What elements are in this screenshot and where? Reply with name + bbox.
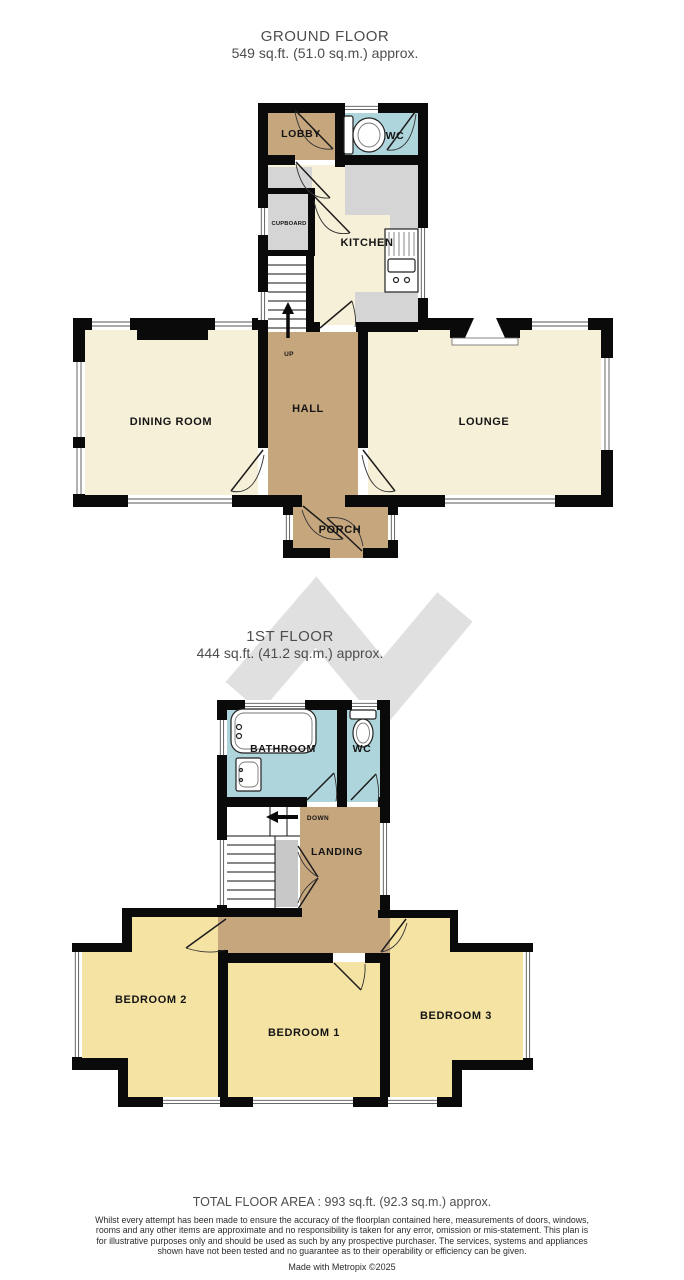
room-label-bathroom: BATHROOM <box>250 743 316 755</box>
room-label-lobby: LOBBY <box>281 128 321 140</box>
wall <box>308 188 315 256</box>
room-label-landing: LANDING <box>311 846 363 858</box>
window <box>258 208 268 235</box>
window <box>92 318 130 330</box>
first-floor-name: 1ST FLOOR <box>0 628 580 645</box>
room-label-wc-ground: WC <box>386 130 405 142</box>
porch-door-opening <box>330 548 363 558</box>
window <box>163 1097 220 1107</box>
room-label-dining: DINING ROOM <box>130 416 212 428</box>
toilet-icon <box>344 116 385 154</box>
room-label-bedroom3: BEDROOM 3 <box>420 1010 492 1022</box>
room-label-wc-first: WC <box>353 743 372 755</box>
total-floor-area: TOTAL FLOOR AREA : 993 sq.ft. (92.3 sq.m… <box>0 1195 684 1209</box>
ground-floor-plan: LOBBY WC CUPBOARD KITCHEN DINING ROOM HA… <box>73 103 613 558</box>
window <box>388 1097 437 1107</box>
window <box>445 495 555 507</box>
stairs-down-label: DOWN <box>307 815 329 822</box>
wall <box>264 188 315 194</box>
basin-icon <box>236 758 261 791</box>
kitchen-counter <box>268 167 312 190</box>
window <box>215 318 252 330</box>
window <box>345 103 378 113</box>
room-label-hall: HALL <box>292 403 324 415</box>
kitchen-counter <box>355 292 418 322</box>
window <box>418 228 428 298</box>
hall-porch-opening <box>302 495 345 507</box>
chimney-breast <box>137 318 208 340</box>
room-landing-lower <box>218 917 390 953</box>
window <box>388 515 398 540</box>
window <box>217 720 227 755</box>
window <box>283 515 293 540</box>
room-lounge <box>368 330 601 497</box>
window <box>73 448 85 494</box>
room-label-cupboard: CUPBOARD <box>271 221 306 227</box>
disclaimer-text: Whilst every attempt has been made to en… <box>92 1215 592 1257</box>
fireplace <box>450 318 520 345</box>
room-label-kitchen: KITCHEN <box>340 237 393 249</box>
window <box>258 292 268 320</box>
room-dining <box>85 330 258 497</box>
kitchen-counter <box>345 165 418 215</box>
floorplan-page: GROUND FLOOR 549 sq.ft. (51.0 sq.m.) app… <box>0 0 684 1280</box>
first-floor-area: 444 sq.ft. (41.2 sq.m.) approx. <box>0 645 580 662</box>
room-label-bedroom1: BEDROOM 1 <box>268 1027 340 1039</box>
room-label-porch: PORCH <box>319 524 362 536</box>
window <box>380 823 390 895</box>
room-label-bedroom2: BEDROOM 2 <box>115 994 187 1006</box>
room-landing <box>300 807 380 917</box>
room-label-lounge: LOUNGE <box>459 416 510 428</box>
window <box>128 495 232 507</box>
credit-text: Made with Metropix ©2025 <box>0 1262 684 1272</box>
first-floor-title: 1ST FLOOR 444 sq.ft. (41.2 sq.m.) approx… <box>0 628 580 662</box>
window <box>253 1097 353 1107</box>
window <box>532 318 588 330</box>
window <box>352 700 377 710</box>
window <box>217 840 227 905</box>
stairs-up-label: UP <box>284 351 294 358</box>
window <box>72 952 82 1057</box>
staircase-first <box>227 807 300 908</box>
first-floor-plan: BATHROOM WC LANDING DOWN BEDROOM 2 BEDRO… <box>72 700 533 1107</box>
room-hall <box>268 332 358 507</box>
window <box>73 362 85 437</box>
window <box>523 952 533 1058</box>
window <box>601 358 613 450</box>
